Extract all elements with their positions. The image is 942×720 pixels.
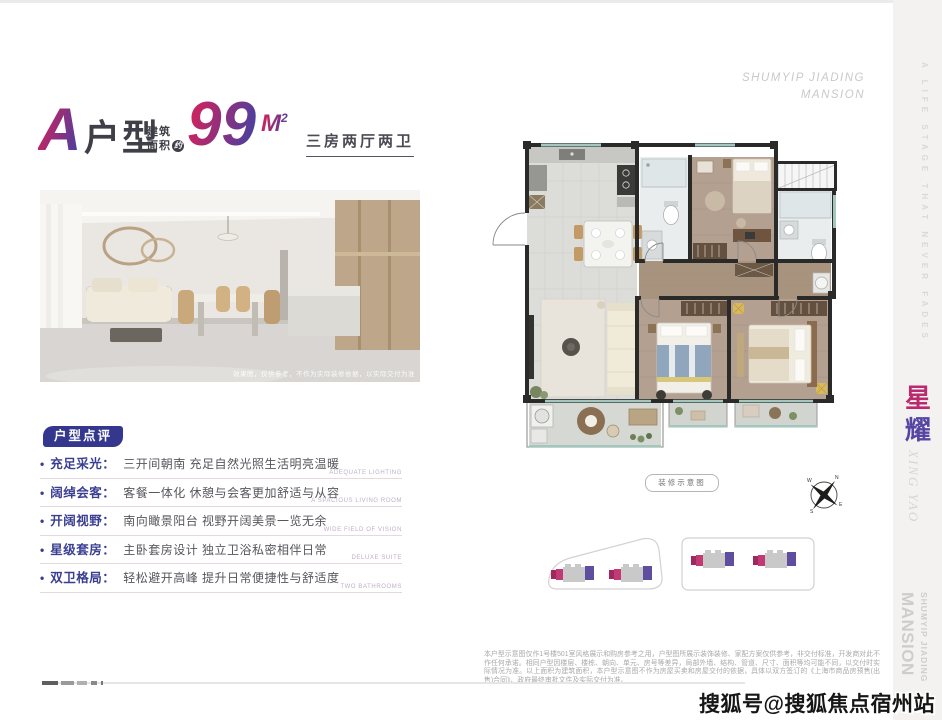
brand-name: SHUMYIP JIADING MANSION bbox=[735, 70, 865, 104]
right-side-strip: A LIFE STAGE THAT NEVER FADES 星 耀 XING Y… bbox=[893, 0, 942, 720]
bullet-icon: • bbox=[40, 457, 44, 471]
hall-cabinet bbox=[735, 263, 773, 277]
area-prefix-line1: 建筑 bbox=[147, 126, 171, 138]
living-room bbox=[529, 299, 637, 399]
brochure-page: A 户型 建筑 面积约 99 M2 三房两厅两卫 SHUMYIP JIADING… bbox=[0, 0, 942, 720]
feature-item: •开阔视野：南向瞰景阳台 视野开阔美景一览无余 WIDE FIELD OF VI… bbox=[40, 507, 402, 536]
svg-text:W: W bbox=[807, 478, 812, 484]
review-badge: 户型点评 bbox=[43, 426, 123, 447]
unit-type-letter: A bbox=[38, 100, 81, 160]
feature-item: •星级套房：主卧套房设计 独立卫浴私密相伴日常 DELUXE SUITE bbox=[40, 536, 402, 565]
bullet-icon: • bbox=[40, 543, 44, 557]
brand-cn-char-2: 耀 bbox=[904, 410, 932, 447]
top-divider bbox=[0, 0, 942, 3]
svg-text:S: S bbox=[810, 509, 814, 515]
interior-render bbox=[40, 190, 420, 382]
sohu-watermark: 搜狐号@搜狐焦点宿州站 bbox=[699, 688, 935, 718]
svg-text:N: N bbox=[835, 475, 839, 481]
progress-line[interactable] bbox=[42, 682, 745, 684]
brand-pinyin: XING YAO bbox=[905, 450, 921, 523]
approx-circle-badge: 约 bbox=[172, 140, 184, 152]
bullet-icon: • bbox=[40, 486, 44, 500]
area-prefix: 建筑 面积约 bbox=[147, 125, 184, 153]
feature-item: •充足采光：三开间朝南 充足自然光照生活明亮温暖 ADEQUATE LIGHTI… bbox=[40, 450, 402, 479]
compass-icon: N W E S bbox=[804, 470, 844, 516]
bullet-icon: • bbox=[40, 514, 44, 528]
interior-photo: 效果图，仅供参考，不作为实际装修依据，以实际交付为准 bbox=[40, 190, 420, 382]
feature-item: •双卫格局：轻松避开高峰 提升日常便捷性与舒适度 TWO BATHROOMS bbox=[40, 564, 402, 593]
area-number: 99 bbox=[187, 94, 256, 156]
bullet-icon: • bbox=[40, 571, 44, 585]
area-prefix-line2: 面积 bbox=[147, 140, 171, 152]
area-unit: M2 bbox=[261, 112, 288, 136]
plan-caption-tag: 装修示意图 bbox=[645, 474, 719, 492]
stairwell bbox=[778, 163, 836, 190]
floor-plan bbox=[483, 133, 867, 451]
photo-disclaimer-caption: 效果图，仅供参考，不作为实际装修依据，以实际交付为准 bbox=[233, 368, 415, 378]
svg-text:E: E bbox=[839, 502, 843, 508]
feature-list: •充足采光：三开间朝南 充足自然光照生活明亮温暖 ADEQUATE LIGHTI… bbox=[40, 450, 402, 593]
dining-set bbox=[574, 221, 642, 267]
feature-item: •阔绰会客：客餐一体化 休憩与会客更加舒适与从容 A SPACIOUS LIVI… bbox=[40, 479, 402, 508]
legal-disclaimer: 本户型示意图仅作1号楼501室风格展示和购房参考之用，户型图所展示装饰装修、家配… bbox=[484, 651, 880, 685]
strip-tagline: A LIFE STAGE THAT NEVER FADES bbox=[920, 62, 929, 343]
layout-tagline: 三房两厅两卫 bbox=[306, 130, 414, 157]
site-plan bbox=[530, 524, 820, 600]
